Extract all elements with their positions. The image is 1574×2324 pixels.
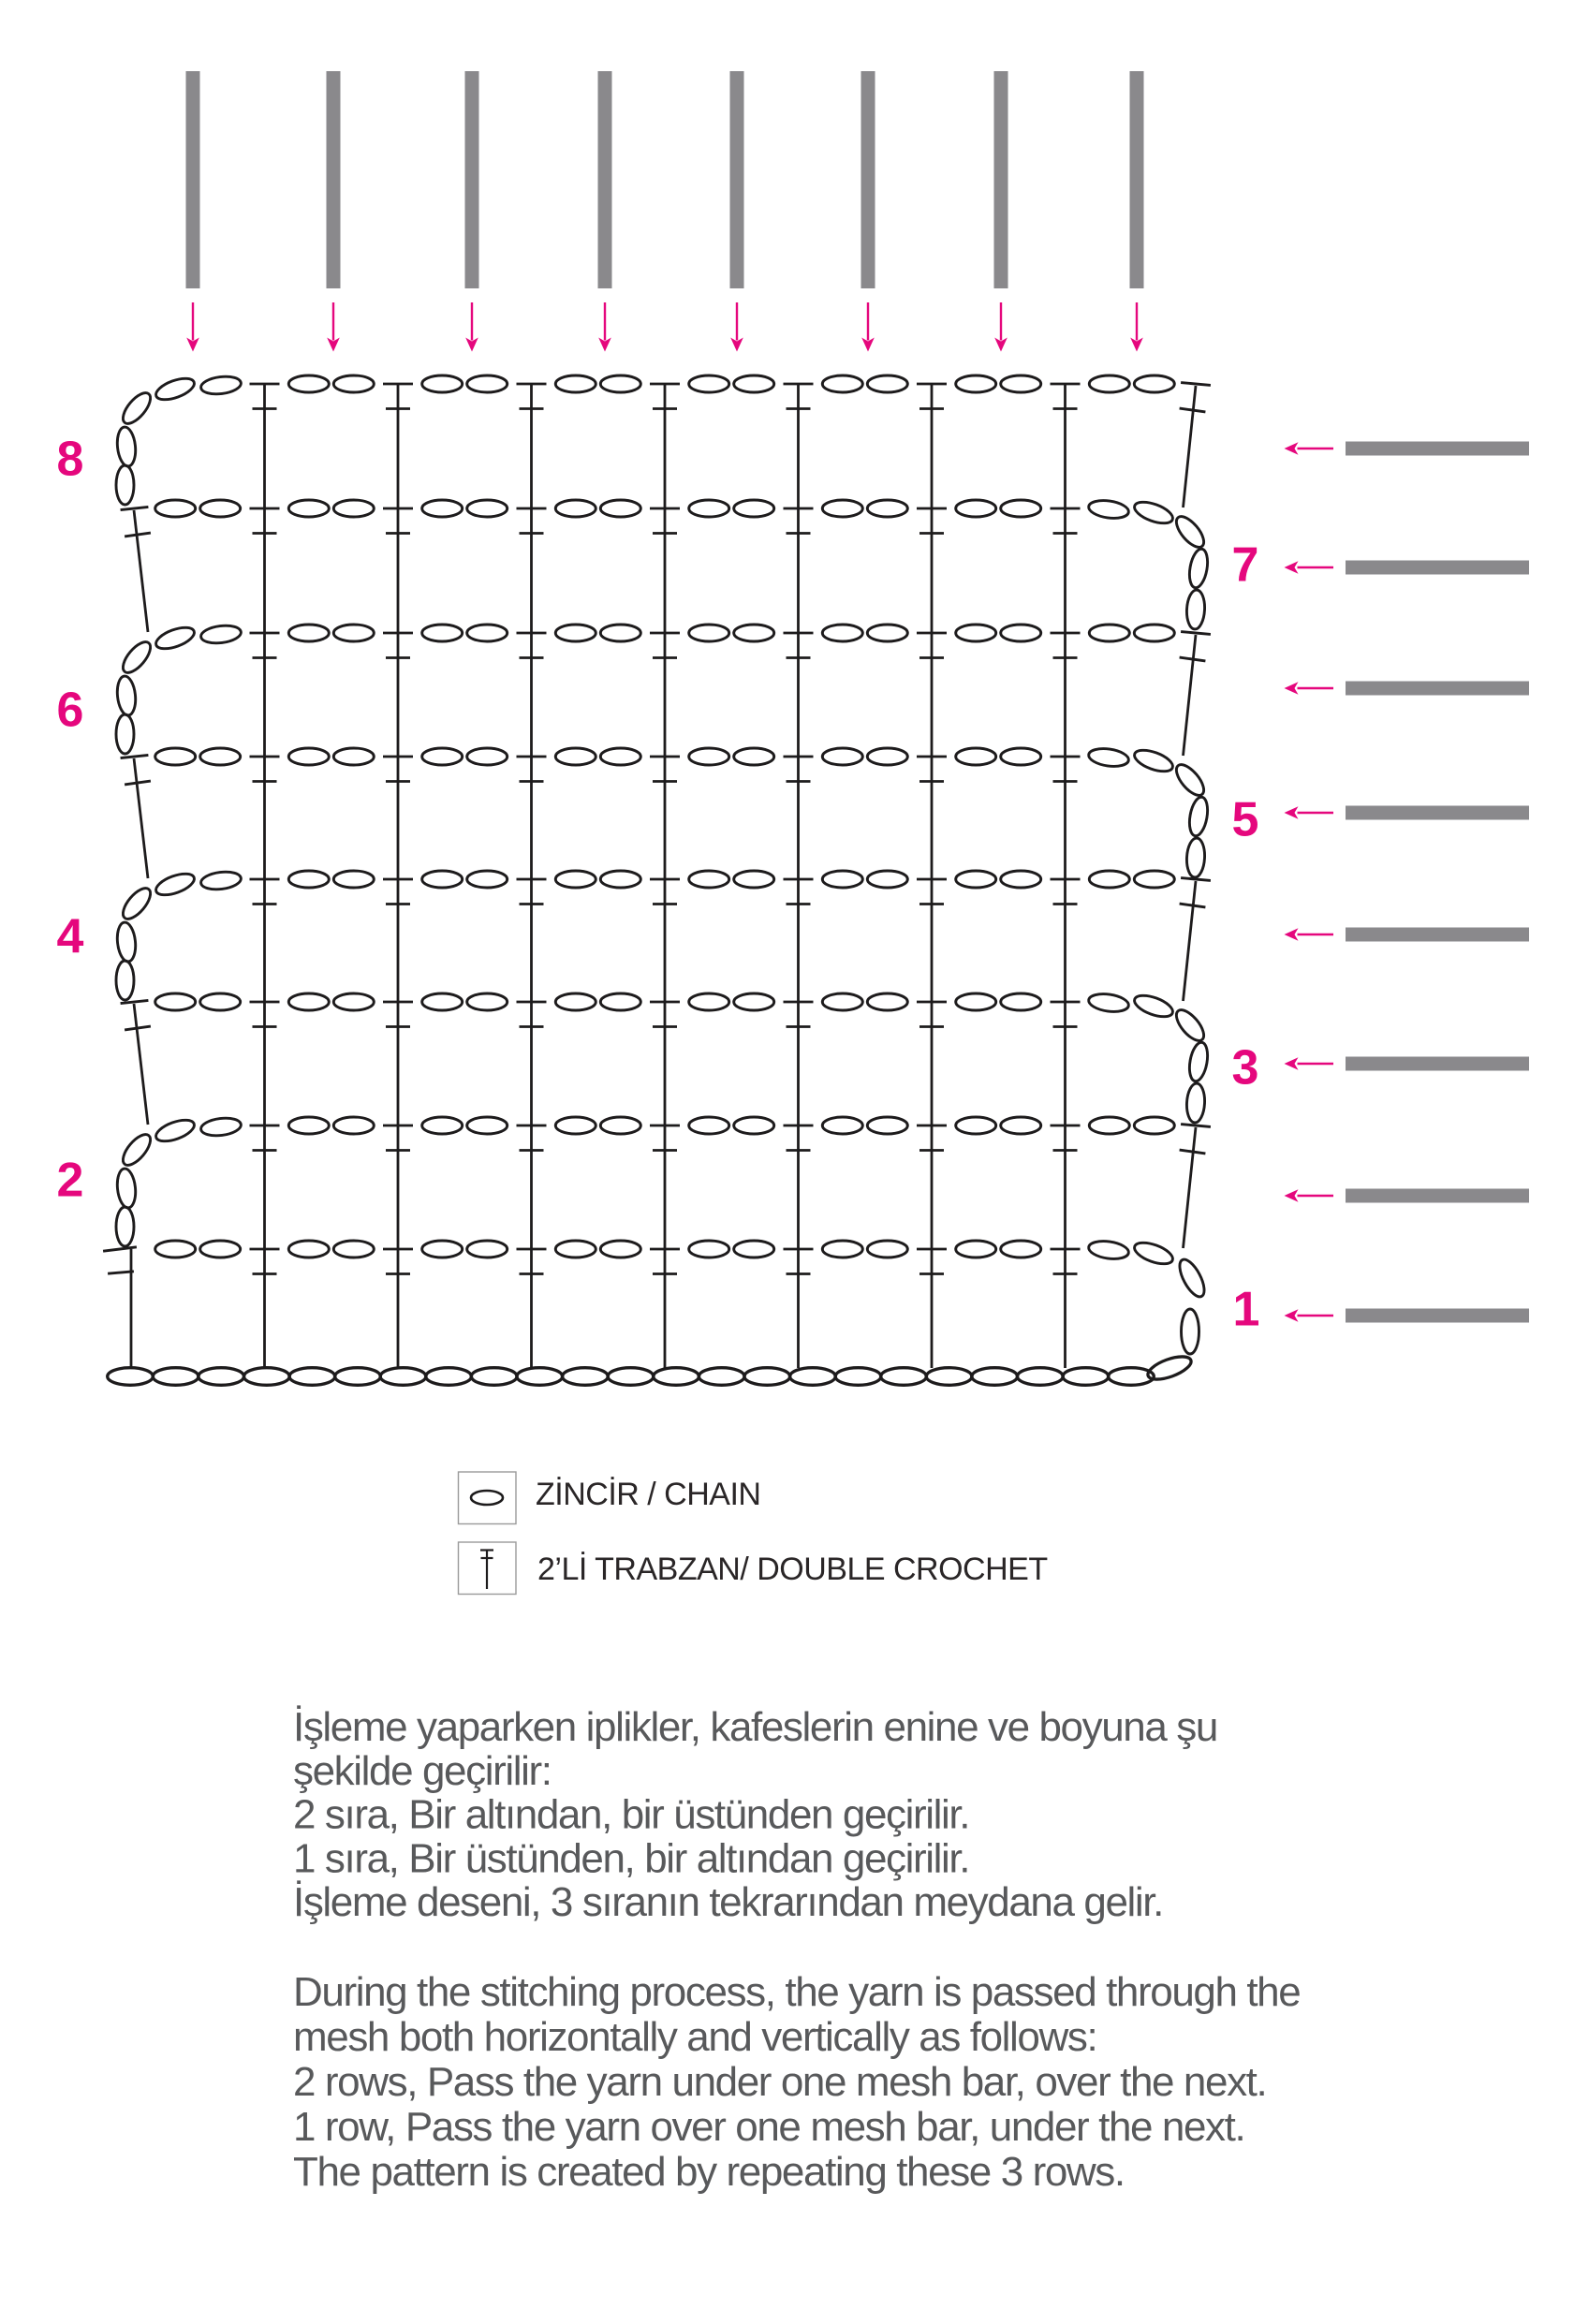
svg-text:1 sıra, Bir üstünden, bir altı: 1 sıra, Bir üstünden, bir altından geçir… [293, 1835, 969, 1881]
svg-text:İşleme yaparken iplikler, kafe: İşleme yaparken iplikler, kafeslerin eni… [293, 1704, 1217, 1750]
svg-text:şekilde geçirilir:: şekilde geçirilir: [293, 1748, 552, 1794]
svg-text:The pattern is created by repe: The pattern is created by repeating thes… [293, 2149, 1125, 2195]
svg-text:7: 7 [1232, 538, 1259, 593]
svg-text:8: 8 [57, 433, 84, 487]
svg-text:6: 6 [57, 684, 84, 738]
svg-text:mesh both horizontally and ver: mesh both horizontally and vertically as… [293, 2014, 1096, 2060]
svg-text:4: 4 [57, 910, 84, 964]
svg-text:2 sıra, Bir altından, bir üstü: 2 sıra, Bir altından, bir üstünden geçir… [293, 1792, 969, 1838]
svg-text:3: 3 [1232, 1041, 1259, 1096]
svg-text:During the stitching process,: During the stitching process, the yarn i… [293, 1969, 1300, 2015]
svg-text:ZİNCİR / CHAIN: ZİNCİR / CHAIN [536, 1477, 760, 1512]
svg-text:2: 2 [57, 1154, 84, 1208]
svg-text:2 rows, Pass the yarn under on: 2 rows, Pass the yarn under one mesh bar… [293, 2059, 1266, 2105]
svg-text:1: 1 [1233, 1283, 1260, 1337]
svg-text:İşleme deseni, 3 sıranın tekra: İşleme deseni, 3 sıranın tekrarından mey… [293, 1879, 1163, 1925]
svg-text:2’Lİ TRABZAN/ DOUBLE CROCHET: 2’Lİ TRABZAN/ DOUBLE CROCHET [537, 1552, 1048, 1587]
svg-text:1 row, Pass the yarn over one: 1 row, Pass the yarn over one mesh bar, … [293, 2104, 1244, 2150]
svg-text:5: 5 [1232, 793, 1259, 847]
